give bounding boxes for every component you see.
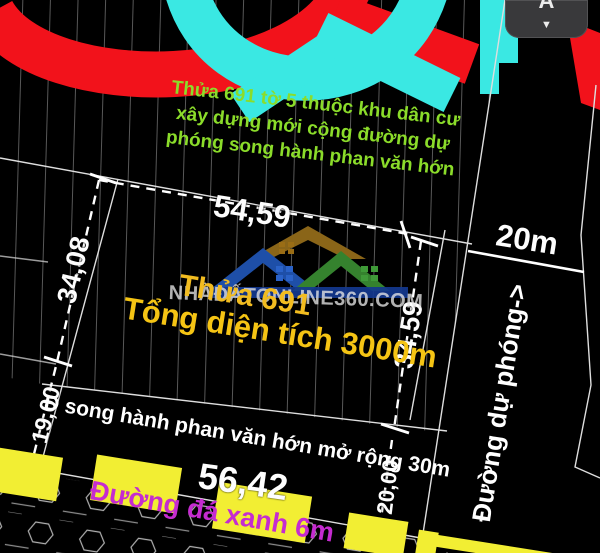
collapse-toolbar-button[interactable]: A ▼	[505, 0, 588, 38]
highlight-patch	[415, 530, 439, 553]
chevron-down-icon: ▼	[541, 17, 552, 33]
font-size-glyph: A	[539, 0, 555, 12]
font-size-icon: A	[539, 0, 555, 17]
map-drawing	[0, 0, 600, 553]
cadastral-map: Thửa 691 tờ 5 thuộc khu dân cư xây dựng …	[0, 0, 600, 553]
